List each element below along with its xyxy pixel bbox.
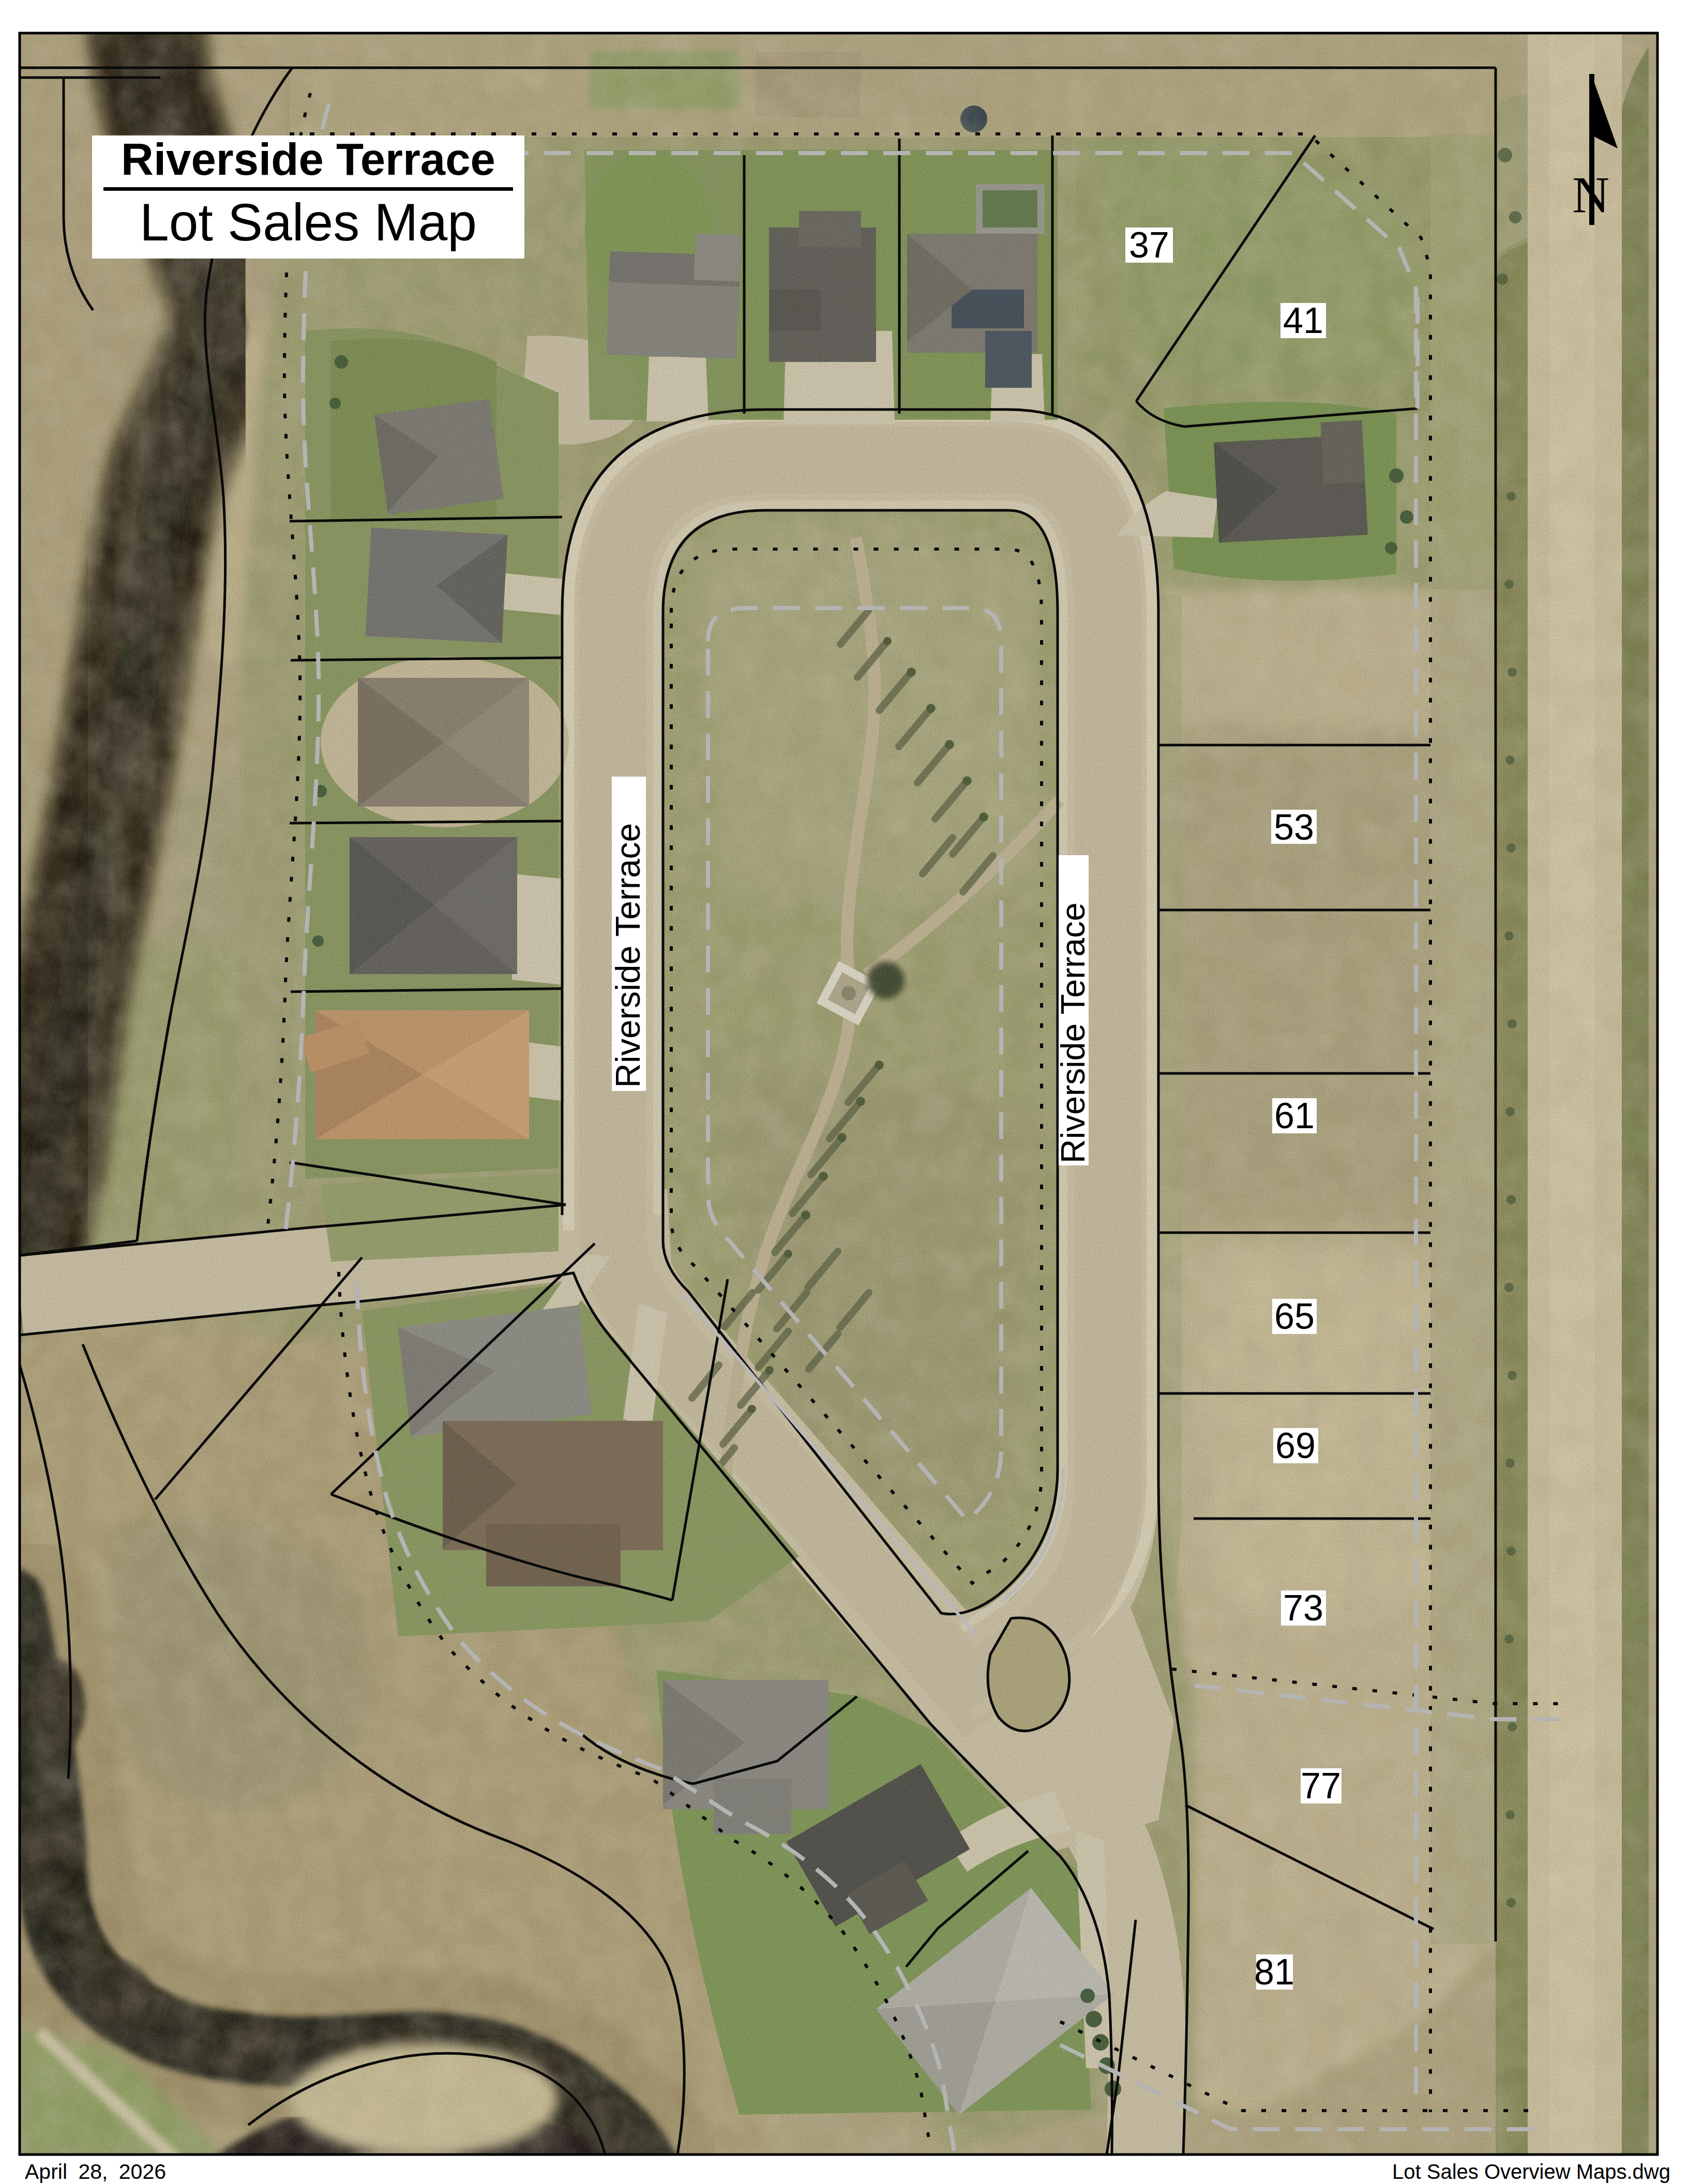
svg-text:41: 41 — [1283, 300, 1323, 341]
svg-text:Riverside Terrace: Riverside Terrace — [609, 823, 647, 1088]
svg-text:77: 77 — [1301, 1766, 1341, 1806]
svg-text:N: N — [1572, 166, 1609, 223]
svg-text:73: 73 — [1283, 1588, 1323, 1628]
svg-text:Lot Sales Map: Lot Sales Map — [140, 193, 477, 252]
svg-text:Riverside Terrace: Riverside Terrace — [1054, 902, 1092, 1163]
svg-text:81: 81 — [1254, 1952, 1294, 1992]
svg-text:37: 37 — [1129, 225, 1169, 265]
svg-text:61: 61 — [1274, 1096, 1315, 1136]
svg-text:65: 65 — [1274, 1296, 1315, 1337]
svg-text:53: 53 — [1274, 807, 1314, 847]
svg-text:Lot Sales Overview Maps.dwg: Lot Sales Overview Maps.dwg — [1392, 2160, 1670, 2183]
svg-text:April 28, 2026: April 28, 2026 — [25, 2160, 166, 2183]
svg-text:Riverside Terrace: Riverside Terrace — [121, 134, 495, 184]
svg-text:69: 69 — [1275, 1425, 1316, 1466]
